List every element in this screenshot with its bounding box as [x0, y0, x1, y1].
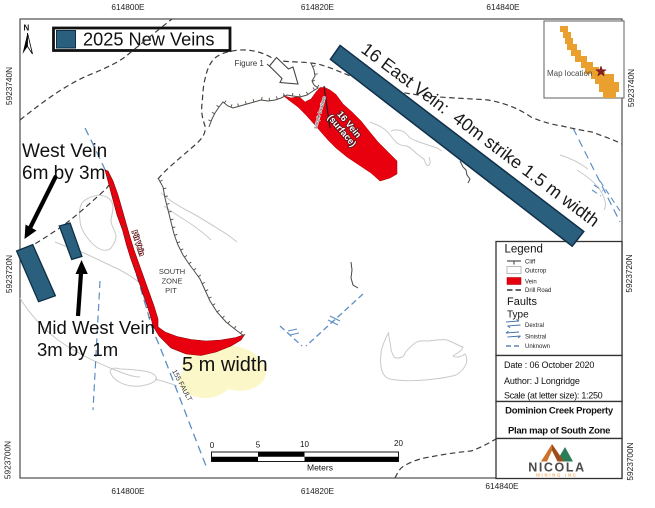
svg-text:N: N	[24, 24, 30, 33]
svg-text:5923740N: 5923740N	[626, 69, 636, 107]
svg-text:5923700N: 5923700N	[3, 441, 13, 479]
svg-text:MINING INC: MINING INC	[536, 473, 578, 478]
svg-text:Drill Road: Drill Road	[525, 288, 551, 294]
svg-text:5 m width: 5 m width	[182, 354, 268, 376]
svg-text:20: 20	[394, 439, 403, 448]
svg-text:Dominion Creek Property: Dominion Creek Property	[505, 406, 614, 417]
svg-text:Sinistral: Sinistral	[525, 335, 546, 341]
svg-text:3m by 1m: 3m by 1m	[37, 339, 118, 360]
svg-text:Vein: Vein	[525, 280, 537, 286]
svg-text:5923700N: 5923700N	[625, 442, 635, 480]
svg-text:ZONE: ZONE	[162, 277, 183, 286]
svg-text:Outcrop: Outcrop	[525, 269, 547, 275]
svg-text:Unknown: Unknown	[525, 344, 550, 350]
svg-text:10: 10	[300, 440, 309, 449]
svg-text:614840E: 614840E	[486, 2, 520, 12]
svg-text:Meters: Meters	[307, 463, 333, 473]
svg-text:5923720N: 5923720N	[4, 255, 14, 293]
svg-text:West Vein: West Vein	[22, 141, 107, 162]
svg-text:614840E: 614840E	[485, 481, 519, 491]
svg-text:Plan map of South Zone: Plan map of South Zone	[508, 426, 610, 437]
svg-text:PIT: PIT	[165, 286, 177, 295]
svg-text:2025 New Veins: 2025 New Veins	[83, 30, 214, 50]
svg-text:Scale (at letter size): 1:250: Scale (at letter size): 1:250	[504, 391, 603, 401]
svg-text:5923720N: 5923720N	[624, 254, 634, 292]
svg-text:Cliff: Cliff	[525, 260, 536, 266]
svg-text:Date : 06 October 2020: Date : 06 October 2020	[504, 360, 594, 370]
svg-text:Map location: Map location	[547, 69, 592, 78]
svg-text:614800E: 614800E	[111, 2, 145, 12]
svg-text:614820E: 614820E	[301, 486, 335, 496]
svg-text:614800E: 614800E	[111, 486, 145, 496]
svg-text:614820E: 614820E	[301, 2, 335, 12]
svg-text:0: 0	[210, 441, 215, 450]
svg-text:5: 5	[256, 441, 261, 450]
svg-text:Dextral: Dextral	[525, 323, 544, 329]
svg-text:SOUTH: SOUTH	[159, 267, 185, 276]
svg-text:Mid West Vein: Mid West Vein	[37, 317, 155, 338]
svg-text:Legend: Legend	[505, 244, 543, 256]
svg-text:6m by 3m: 6m by 3m	[22, 163, 105, 184]
svg-text:Type: Type	[507, 310, 529, 321]
svg-text:5923740N: 5923740N	[4, 67, 14, 105]
svg-text:Figure 1: Figure 1	[235, 59, 265, 68]
svg-text:Author: J Longridge: Author: J Longridge	[504, 376, 580, 386]
svg-text:Faults: Faults	[507, 296, 537, 308]
